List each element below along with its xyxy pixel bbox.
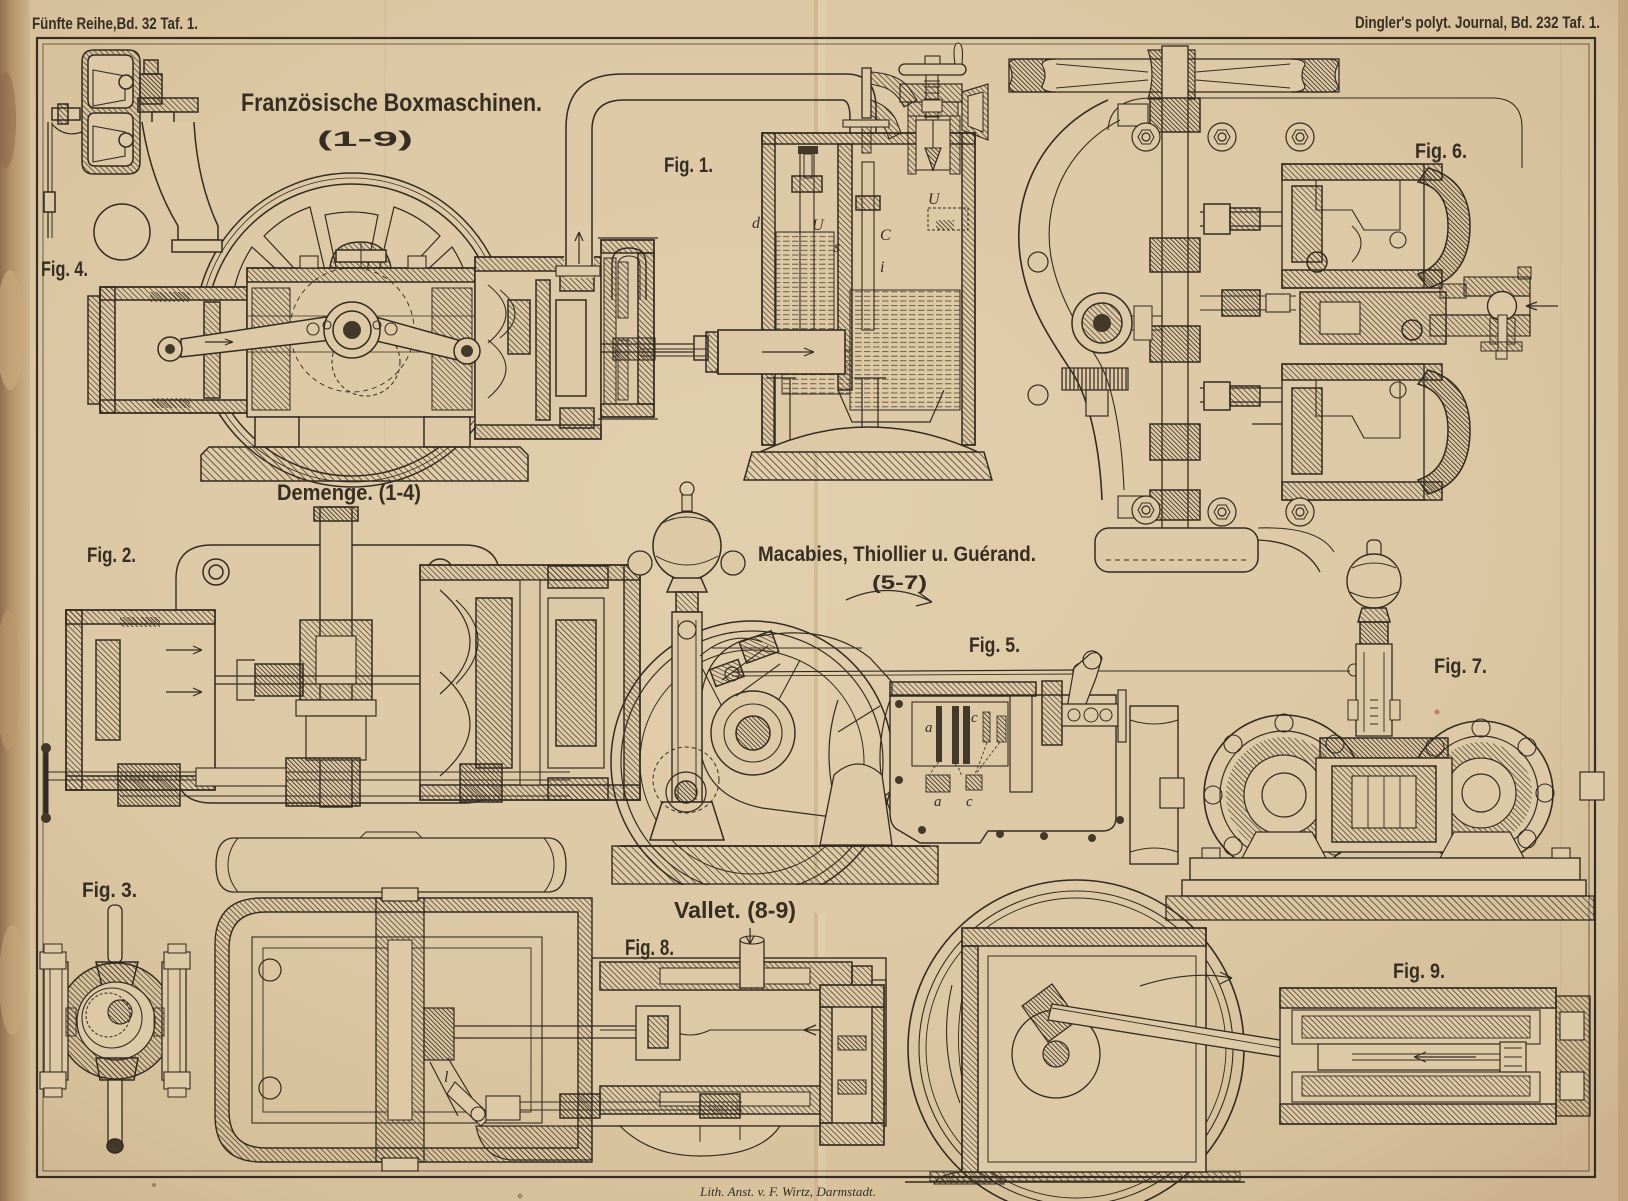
svg-text:Französische Boxmaschinen.: Französische Boxmaschinen. [241,89,542,117]
svg-text:c: c [966,794,973,810]
svg-text:Lith. Anst. v. F. Wirtz, Darms: Lith. Anst. v. F. Wirtz, Darmstadt. [699,1184,876,1199]
svg-text:Macabies, Thiollier u. Guérand: Macabies, Thiollier u. Guérand. [758,543,1036,566]
svg-text:l: l [444,1069,449,1086]
svg-text:a: a [934,794,942,810]
svg-text:i: i [880,259,884,276]
svg-text:Vallet. (8-9): Vallet. (8-9) [674,897,796,923]
svg-text:U: U [928,191,941,208]
svg-text:Fig. 8.: Fig. 8. [625,935,674,960]
svg-text:Fig. 6.: Fig. 6. [1415,140,1467,163]
svg-text:Dingler's polyt. Journal, Bd.: Dingler's polyt. Journal, Bd. 232 Taf. 1… [1355,13,1600,32]
svg-text:a: a [925,720,933,736]
svg-text:s: s [834,239,840,256]
svg-text:C: C [880,227,891,244]
svg-text:c: c [971,710,978,726]
svg-text:Fig. 4.: Fig. 4. [41,258,88,281]
svg-text:Fünfte Reihe,Bd. 32 Taf. 1.: Fünfte Reihe,Bd. 32 Taf. 1. [32,14,198,33]
svg-text:d: d [752,215,761,232]
svg-text:Fig. 3.: Fig. 3. [82,879,137,902]
svg-text:(5-7): (5-7) [872,573,927,594]
svg-text:(1-9): (1-9) [317,128,413,151]
svg-text:U: U [812,217,825,234]
svg-text:Fig. 9.: Fig. 9. [1393,960,1445,983]
svg-text:Fig. 1.: Fig. 1. [664,154,713,177]
svg-text:Fig. 7.: Fig. 7. [1434,655,1487,678]
svg-text:Fig. 5.: Fig. 5. [969,634,1020,657]
svg-text:Fig. 2.: Fig. 2. [87,544,136,567]
svg-text:Demenge. (1-4): Demenge. (1-4) [277,480,421,505]
